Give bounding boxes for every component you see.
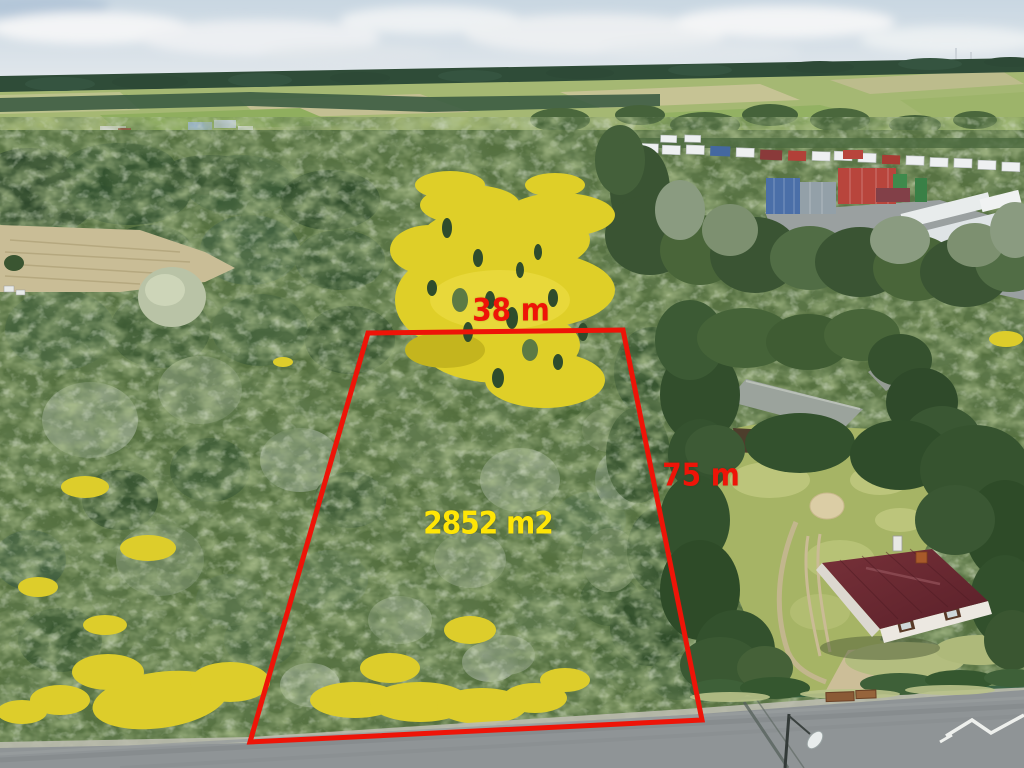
landscape-scene [0, 0, 1024, 768]
chimney-orange [916, 552, 927, 563]
white-shed [4, 286, 14, 292]
chimney-white [893, 536, 902, 551]
plot-depth-label: 75 m [662, 461, 740, 492]
aerial-photo-viewport: 38 m 75 m 2852 m2 [0, 0, 1024, 768]
sandy-circle [810, 493, 844, 519]
industrial-hall [188, 122, 212, 131]
plot-area-label: 2852 m2 [423, 509, 553, 540]
plot-width-label: 38 m [472, 296, 550, 327]
lone-tree [4, 255, 24, 271]
